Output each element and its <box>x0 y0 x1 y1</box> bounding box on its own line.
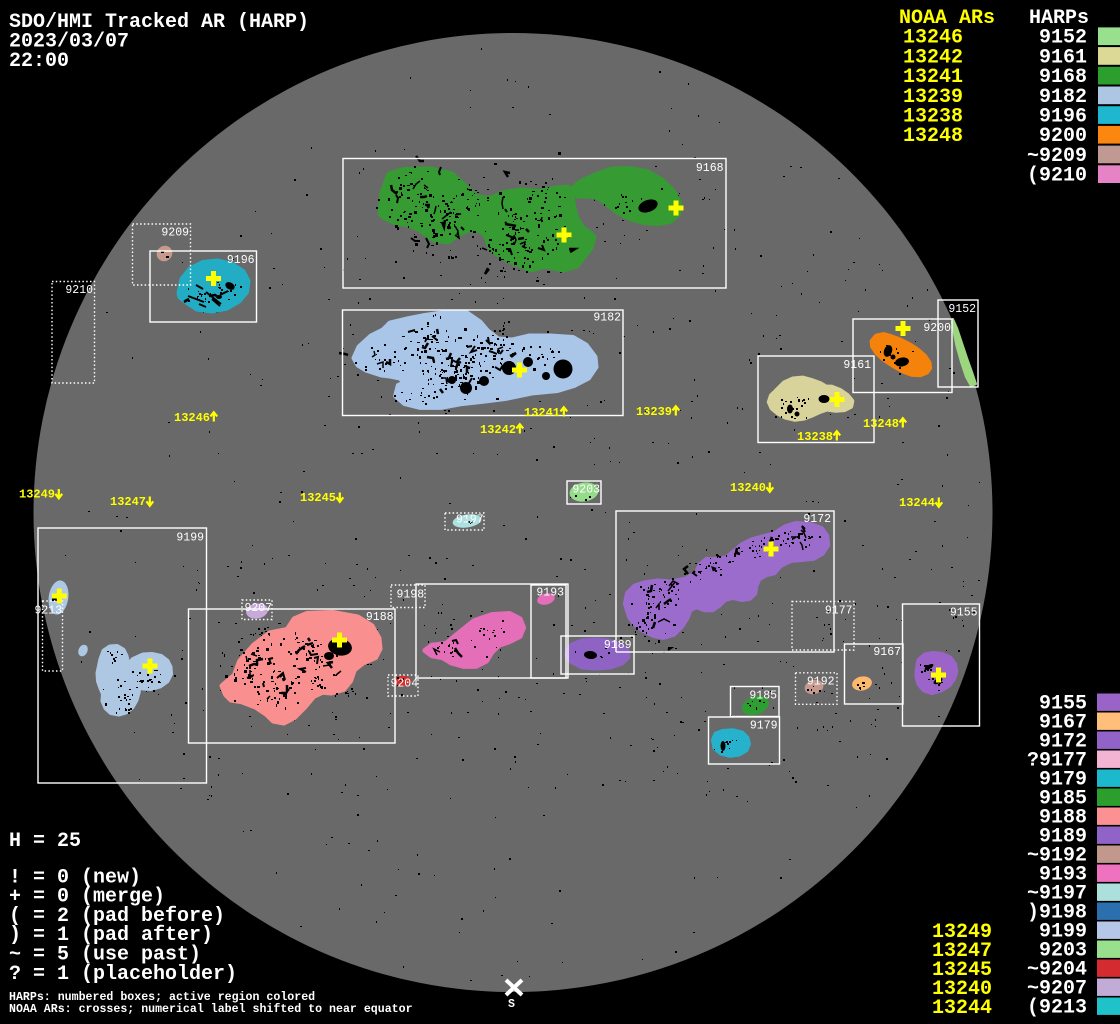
svg-text:13241: 13241 <box>524 406 560 420</box>
svg-text:9213: 9213 <box>35 605 63 618</box>
svg-text:13244: 13244 <box>932 997 992 1020</box>
svg-text:13245: 13245 <box>300 491 336 505</box>
svg-text:(9210: (9210 <box>1027 165 1087 188</box>
svg-text:9172: 9172 <box>803 513 831 526</box>
svg-text:9200: 9200 <box>923 322 951 335</box>
svg-text:NOAA ARs: crosses; numerical l: NOAA ARs: crosses; numerical label shift… <box>9 1003 413 1016</box>
svg-text:9177: 9177 <box>825 605 853 618</box>
svg-text:9193: 9193 <box>536 587 564 600</box>
svg-text:13242: 13242 <box>480 423 516 437</box>
svg-text:? = 1 (placeholder): ? = 1 (placeholder) <box>9 963 237 986</box>
svg-text:13239: 13239 <box>636 405 672 419</box>
svg-text:9179: 9179 <box>750 720 778 733</box>
svg-text:9182: 9182 <box>593 312 621 325</box>
svg-text:9199: 9199 <box>176 532 204 545</box>
svg-text:9209: 9209 <box>161 227 189 240</box>
svg-text:13248: 13248 <box>863 417 899 431</box>
svg-text:13238: 13238 <box>797 430 833 444</box>
svg-text:9210: 9210 <box>65 284 93 297</box>
svg-text:9155: 9155 <box>950 607 978 620</box>
svg-text:9152: 9152 <box>948 303 976 316</box>
svg-text:9167: 9167 <box>873 646 901 659</box>
svg-text:9204: 9204 <box>391 678 419 691</box>
svg-text:(9213: (9213 <box>1027 997 1087 1020</box>
svg-text:13248: 13248 <box>903 125 963 148</box>
svg-text:9189: 9189 <box>604 639 632 652</box>
svg-text:13249: 13249 <box>19 488 55 502</box>
svg-text:9188: 9188 <box>366 611 394 624</box>
svg-text:13246: 13246 <box>174 411 210 425</box>
svg-text:9197: 9197 <box>456 514 484 527</box>
svg-text:9185: 9185 <box>749 690 777 703</box>
svg-text:13240: 13240 <box>730 481 766 495</box>
svg-text:S: S <box>508 998 515 1011</box>
svg-text:13247: 13247 <box>110 495 146 509</box>
svg-text:9161: 9161 <box>843 359 871 372</box>
svg-text:9207: 9207 <box>245 602 273 615</box>
svg-text:9203: 9203 <box>572 484 600 497</box>
svg-text:22:00: 22:00 <box>9 50 69 73</box>
svg-text:9198: 9198 <box>397 589 425 602</box>
svg-text:9192: 9192 <box>807 676 835 689</box>
svg-text:13244: 13244 <box>899 496 935 510</box>
svg-text:H = 25: H = 25 <box>9 830 81 853</box>
svg-text:9168: 9168 <box>696 162 724 175</box>
svg-text:9196: 9196 <box>227 254 255 267</box>
